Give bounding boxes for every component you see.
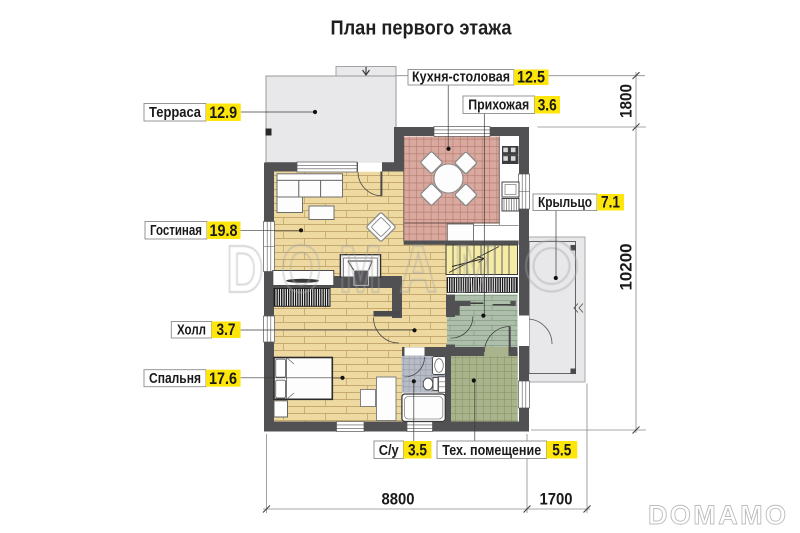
svg-text:3.7: 3.7 xyxy=(217,321,236,339)
svg-text:Крыльцо: Крыльцо xyxy=(538,195,592,211)
svg-text:Прихожая: Прихожая xyxy=(468,98,529,114)
svg-text:С/у: С/у xyxy=(379,443,399,459)
svg-text:5.5: 5.5 xyxy=(552,442,571,460)
svg-text:План первого этажа: План первого этажа xyxy=(331,17,513,40)
svg-text:12.5: 12.5 xyxy=(517,69,545,87)
svg-text:Гостиная: Гостиная xyxy=(150,223,202,239)
svg-text:3.6: 3.6 xyxy=(538,97,557,115)
svg-text:8800: 8800 xyxy=(382,491,415,509)
svg-text:Кухня-столовая: Кухня-столовая xyxy=(412,70,510,86)
svg-text:Спальня: Спальня xyxy=(149,371,201,387)
svg-text:12.9: 12.9 xyxy=(209,104,237,122)
svg-text:Терраса: Терраса xyxy=(149,105,202,121)
svg-text:1700: 1700 xyxy=(540,491,573,509)
svg-text:DOMAMO: DOMAMO xyxy=(648,500,788,530)
svg-text:DOMAM: DOMAM xyxy=(226,232,515,307)
svg-text:19.8: 19.8 xyxy=(210,222,238,240)
svg-text:Тех. помещение: Тех. помещение xyxy=(442,443,541,459)
svg-text:7.1: 7.1 xyxy=(601,194,620,212)
svg-text:Холл: Холл xyxy=(177,323,206,339)
svg-text:1800: 1800 xyxy=(618,84,636,118)
svg-text:10200: 10200 xyxy=(618,244,636,291)
svg-text:17.6: 17.6 xyxy=(209,370,237,388)
svg-text:3.5: 3.5 xyxy=(408,442,427,460)
